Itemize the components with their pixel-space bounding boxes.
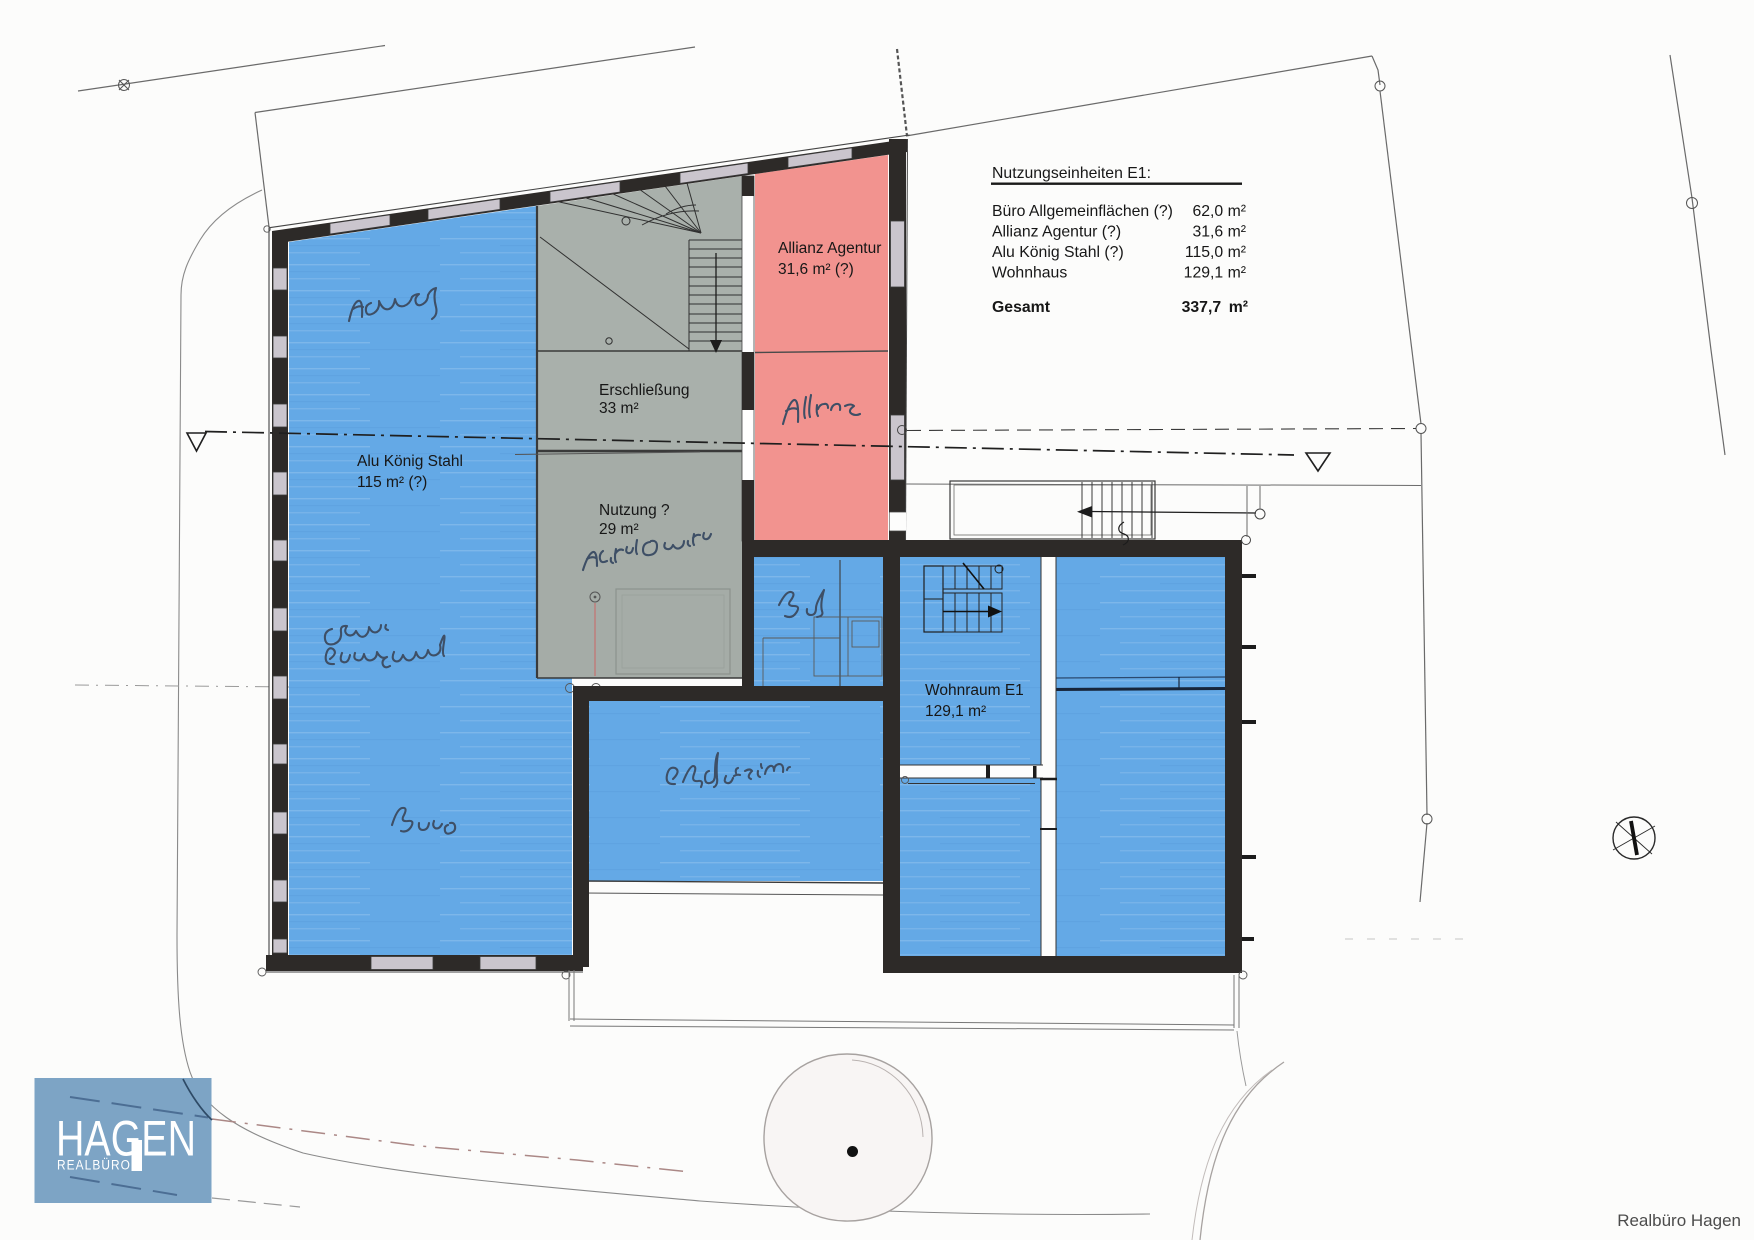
svg-text:Realbüro Hagen: Realbüro Hagen	[1617, 1211, 1741, 1230]
svg-text:129,1 m²: 129,1 m²	[925, 703, 986, 720]
svg-text:62,0 m²: 62,0 m²	[1192, 203, 1246, 220]
svg-text:Nutzungseinheiten E1:: Nutzungseinheiten E1:	[992, 165, 1151, 182]
svg-text:Erschließung: Erschließung	[599, 382, 689, 399]
svg-text:115 m² (?): 115 m² (?)	[357, 474, 427, 491]
svg-text:129,1 m²: 129,1 m²	[1184, 265, 1246, 282]
svg-text:Gesamt: Gesamt	[992, 299, 1051, 316]
svg-text:29 m²: 29 m²	[599, 521, 639, 538]
svg-text:337,7 m²: 337,7 m²	[1182, 299, 1248, 316]
svg-text:Büro Allgemeinflächen (?): Büro Allgemeinflächen (?)	[992, 203, 1173, 220]
svg-text:31,6 m² (?): 31,6 m² (?)	[778, 261, 854, 278]
svg-text:REALBÜRO: REALBÜRO	[57, 1158, 131, 1173]
svg-text:Alu König Stahl (?): Alu König Stahl (?)	[992, 244, 1124, 261]
svg-text:31,6 m²: 31,6 m²	[1192, 224, 1246, 241]
svg-text:Nutzung ?: Nutzung ?	[599, 502, 670, 519]
svg-text:Wohnhaus: Wohnhaus	[992, 265, 1067, 282]
svg-text:Wohnraum E1: Wohnraum E1	[925, 682, 1024, 699]
svg-text:Alu König Stahl: Alu König Stahl	[357, 453, 463, 470]
svg-text:115,0 m²: 115,0 m²	[1185, 244, 1246, 261]
svg-text:33 m²: 33 m²	[599, 400, 639, 417]
svg-text:Allianz Agentur (?): Allianz Agentur (?)	[992, 224, 1121, 241]
svg-text:Allianz Agentur: Allianz Agentur	[778, 240, 881, 257]
